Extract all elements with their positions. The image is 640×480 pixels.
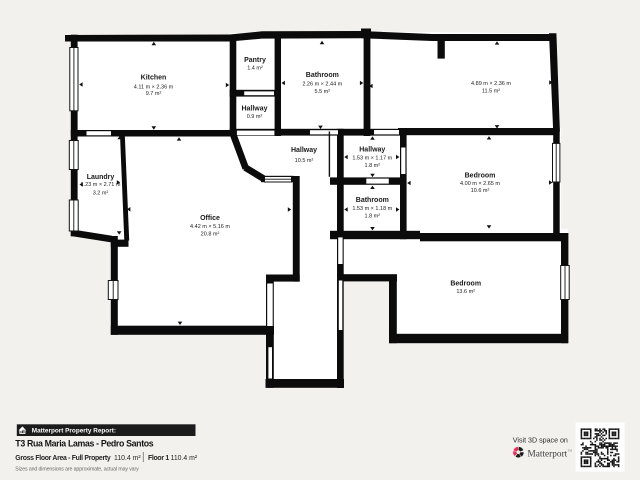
svg-text:10.5 m²: 10.5 m² — [295, 158, 314, 164]
svg-text:4.11 m × 2.36 m: 4.11 m × 2.36 m — [134, 84, 174, 90]
svg-text:20.8 m²: 20.8 m² — [201, 231, 220, 237]
svg-text:Laundry: Laundry — [87, 174, 115, 181]
svg-text:1.53 m × 1.17 m: 1.53 m × 1.17 m — [352, 155, 392, 161]
svg-text:110.4 m²: 110.4 m² — [171, 455, 198, 462]
svg-text:Bathroom: Bathroom — [356, 197, 389, 204]
svg-text:110.4 m²: 110.4 m² — [114, 455, 141, 462]
svg-text:1.4 m²: 1.4 m² — [247, 65, 263, 71]
svg-text:Matterport Property Report:: Matterport Property Report: — [32, 428, 116, 435]
svg-text:Hallway: Hallway — [241, 106, 267, 113]
svg-text:2.26 m × 2.44 m: 2.26 m × 2.44 m — [302, 81, 342, 87]
svg-text:Bedroom: Bedroom — [450, 280, 481, 287]
svg-text:TM: TM — [567, 448, 572, 452]
svg-text:Matterport: Matterport — [528, 449, 568, 459]
svg-text:1.8 m²: 1.8 m² — [365, 214, 381, 220]
svg-text:5.5 m²: 5.5 m² — [315, 89, 331, 95]
svg-text:Hallway: Hallway — [291, 147, 317, 154]
svg-text:Sizes and dimensions are appro: Sizes and dimensions are approximate, ac… — [15, 466, 139, 472]
svg-text:Office: Office — [200, 215, 220, 222]
svg-text:Gross Floor Area - Full Proper: Gross Floor Area - Full Property — [15, 455, 111, 462]
svg-text:3.2 m²: 3.2 m² — [93, 191, 109, 197]
svg-text:1.8 m²: 1.8 m² — [365, 163, 381, 169]
svg-text:10.6 m²: 10.6 m² — [471, 188, 490, 194]
svg-text:4.00 m × 2.65 m: 4.00 m × 2.65 m — [460, 181, 500, 187]
svg-text:Floor 1: Floor 1 — [148, 455, 169, 462]
svg-text:4.42 m × 5.16 m: 4.42 m × 5.16 m — [190, 224, 230, 230]
svg-text:4.89 m × 2.36 m: 4.89 m × 2.36 m — [471, 81, 511, 87]
svg-text:11.5 m²: 11.5 m² — [482, 89, 500, 95]
svg-text:Bathroom: Bathroom — [306, 72, 339, 79]
svg-text:0.9 m²: 0.9 m² — [247, 114, 263, 120]
svg-text:Pantry: Pantry — [244, 57, 266, 64]
svg-text:Visit 3D space on: Visit 3D space on — [513, 436, 568, 444]
svg-text:13.6 m²: 13.6 m² — [456, 289, 475, 295]
svg-text:9.7 m²: 9.7 m² — [146, 91, 162, 97]
svg-text:Hallway: Hallway — [359, 146, 385, 153]
svg-text:Kitchen: Kitchen — [141, 75, 167, 82]
svg-text:1.23 m × 2.71 m: 1.23 m × 2.71 m — [81, 182, 121, 188]
svg-text:1.53 m × 1.18 m: 1.53 m × 1.18 m — [352, 206, 392, 212]
svg-text:Bedroom: Bedroom — [465, 172, 496, 179]
svg-text:T3 Rua Maria Lamas - Pedro San: T3 Rua Maria Lamas - Pedro Santos — [15, 439, 153, 449]
